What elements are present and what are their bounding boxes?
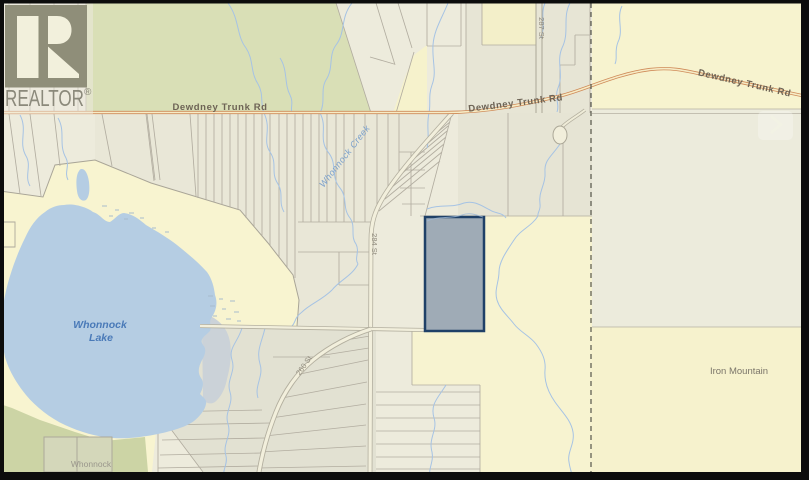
svg-text:287 St: 287 St — [537, 17, 546, 40]
svg-text:REALTOR: REALTOR — [5, 85, 84, 111]
svg-text:Whonnock: Whonnock — [71, 459, 112, 469]
svg-text:Iron Mountain: Iron Mountain — [710, 366, 768, 377]
svg-text:Lake: Lake — [89, 332, 113, 344]
svg-text:®: ® — [84, 87, 92, 98]
svg-text:Whonnock: Whonnock — [73, 319, 128, 331]
svg-text:Dewdney Trunk Rd: Dewdney Trunk Rd — [172, 102, 267, 113]
svg-text:284 St: 284 St — [370, 233, 379, 256]
